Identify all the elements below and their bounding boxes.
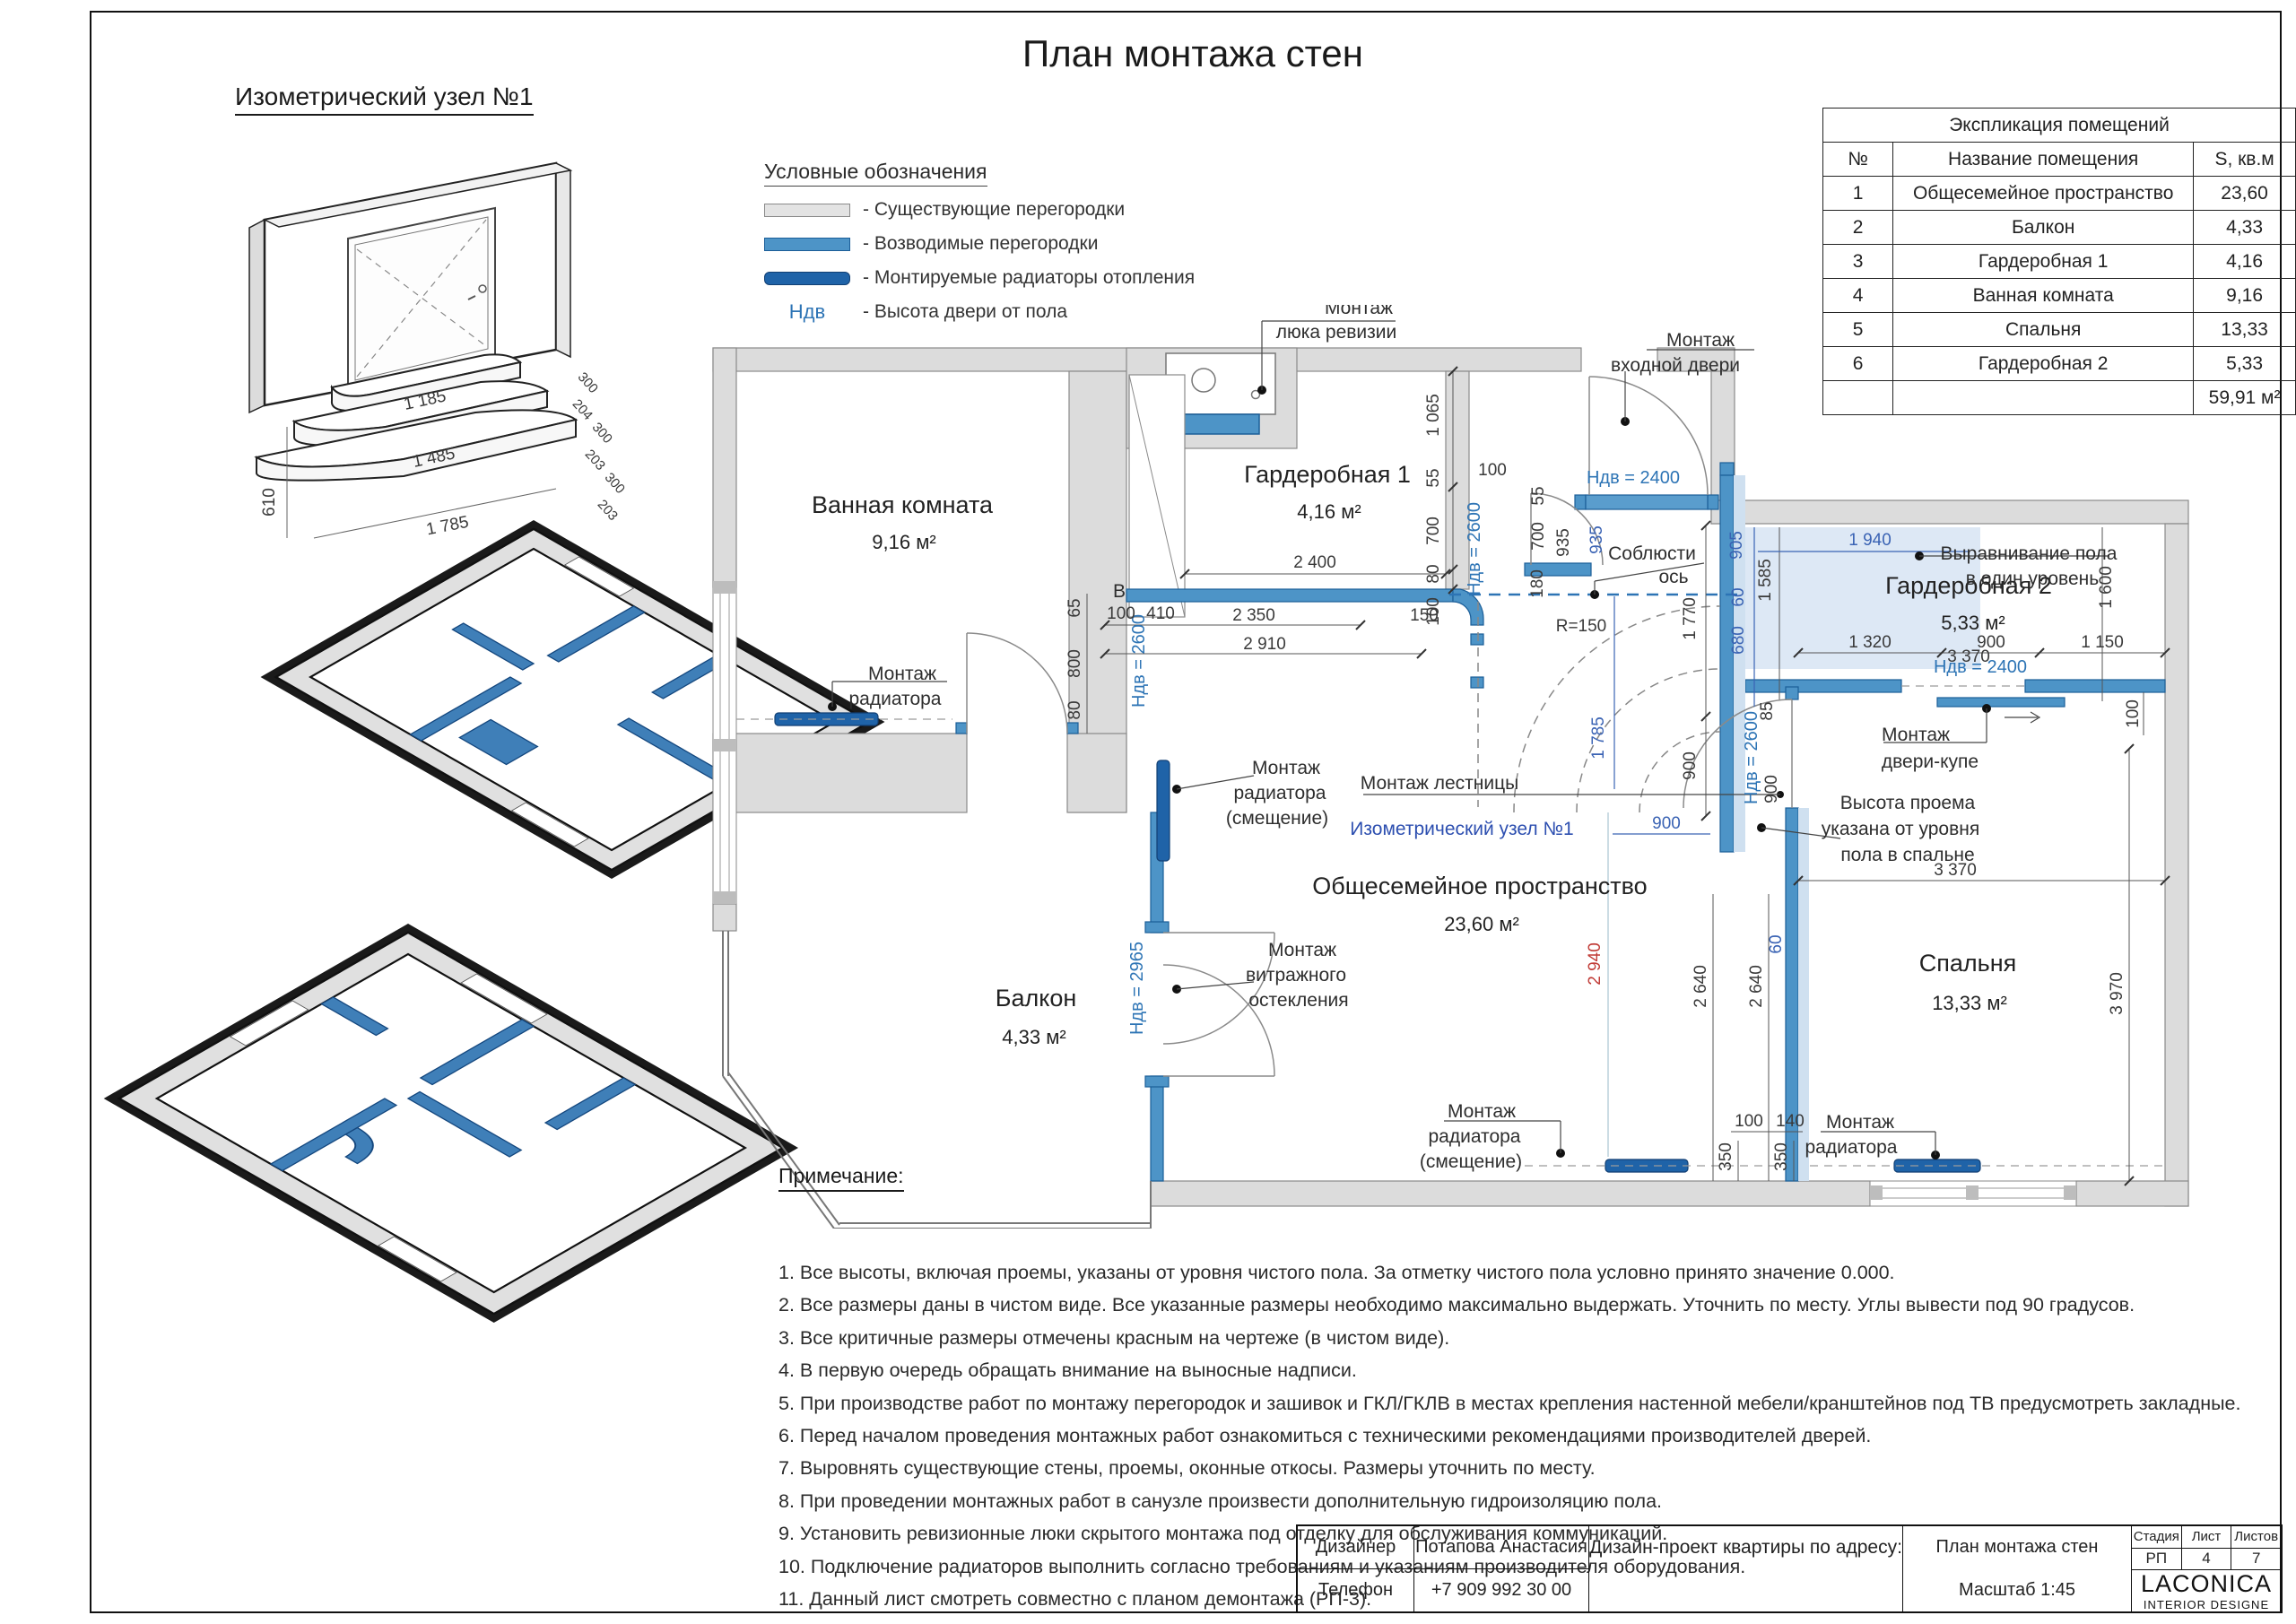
legend-item: - Существующие перегородки xyxy=(863,199,1125,221)
legend-item: - Возводимые перегородки xyxy=(863,233,1098,255)
total-area: 59,91 м² xyxy=(2194,381,2296,415)
dim: 2 640 xyxy=(1747,965,1766,1008)
callout: Монтаж xyxy=(1666,330,1735,351)
legend-item: - Монтируемые радиаторы отопления xyxy=(863,267,1195,289)
stage-label: Стадия xyxy=(2132,1526,2182,1548)
callout: Монтаж xyxy=(1448,1101,1516,1122)
dim: 2 910 xyxy=(1243,635,1286,654)
callout: ось xyxy=(1658,567,1688,587)
note-item: 1. Все высоты, включая проемы, указаны о… xyxy=(778,1256,2178,1289)
callout: Монтаж xyxy=(1325,305,1393,318)
room-name: Гардеробная 1 xyxy=(1244,461,1411,488)
explication-title: Экспликация помещений xyxy=(1823,109,2296,143)
dim: 2 400 xyxy=(1293,553,1336,572)
stage-value: РП xyxy=(2132,1549,2182,1570)
ndv-label: Ндв = 2965 xyxy=(1127,942,1147,1035)
callout-iso-ref: Изометрический узел №1 xyxy=(1350,819,1573,839)
dim: 680 xyxy=(1729,626,1748,655)
dim: 180 xyxy=(1528,569,1547,598)
dim-critical: 2 940 xyxy=(1586,942,1605,986)
dim: 55 xyxy=(1424,468,1443,487)
brand-sub: INTERIOR DESIGNE xyxy=(2144,1598,2269,1611)
dim: 100 xyxy=(1478,461,1507,480)
dim: 1 150 xyxy=(2081,633,2124,652)
callout: Высота проема xyxy=(1840,793,1976,813)
note-item: 4. В первую очередь обращать внимание на… xyxy=(778,1354,2178,1386)
ndv-label: Ндв = 2400 xyxy=(1587,468,1680,488)
dim: 700 xyxy=(1529,522,1548,551)
dim: 1 785 xyxy=(1589,716,1608,760)
room-name: Балкон xyxy=(996,985,1077,1012)
callout: Монтаж xyxy=(868,664,936,684)
new-wall-swatch-icon xyxy=(764,238,850,251)
col-num: № xyxy=(1823,143,1893,177)
drawing-sheet: План монтажа стен Изометрический узел №1… xyxy=(0,0,2296,1624)
sheet-label: Лист xyxy=(2182,1526,2232,1548)
dim: 1 065 xyxy=(1424,394,1443,437)
project-name: Дизайн-проект квартиры по адресу: xyxy=(1589,1526,1902,1611)
callout: Монтаж xyxy=(1826,1112,1894,1133)
brand-logo: LACONICA xyxy=(2141,1570,2272,1598)
col-name: Название помещения xyxy=(1893,143,2194,177)
iso-node-title: Изометрический узел №1 xyxy=(235,83,534,116)
room-area: 23,60 м² xyxy=(1444,913,1519,935)
callout: радиатора xyxy=(1429,1126,1521,1147)
sheet-name: План монтажа стен xyxy=(1903,1526,2131,1569)
callout: остекления xyxy=(1248,990,1348,1011)
note-item: 8. При проведении монтажных работ в сану… xyxy=(778,1485,2178,1517)
dim: 1 940 xyxy=(1848,531,1892,550)
dim: 1 585 xyxy=(1756,559,1775,602)
page-title: План монтажа стен xyxy=(942,32,1444,75)
dim: 65 xyxy=(1065,598,1084,617)
sheets-total: 7 xyxy=(2231,1549,2281,1570)
iso-dim: 300 xyxy=(602,470,628,497)
callout: витражного xyxy=(1246,965,1346,986)
dim: 2 640 xyxy=(1692,965,1710,1008)
dim: 100 xyxy=(2124,699,2143,728)
room-name: Спальня xyxy=(1919,950,2017,977)
callout: радиатора xyxy=(1234,783,1326,803)
dim: 60 xyxy=(1729,587,1748,606)
designer-name: Потапова Анастасия xyxy=(1414,1526,1588,1569)
callout: радиатора xyxy=(849,689,942,709)
dim: 85 xyxy=(1758,701,1777,720)
callout: люка ревизии xyxy=(1276,322,1397,343)
note-item: 7. Выровнять существующие стены, проемы,… xyxy=(778,1452,2178,1484)
callout: Монтаж xyxy=(1252,758,1320,778)
dim: R=150 xyxy=(1556,617,1607,636)
dim: 140 xyxy=(1776,1112,1805,1131)
callout: двери-купе xyxy=(1882,751,1979,772)
radiator-swatch-icon xyxy=(764,272,850,285)
callout: Выравнивание пола xyxy=(1941,543,2118,564)
legend: Условные обозначения - Существующие пере… xyxy=(764,160,1195,323)
table-row: 2Балкон4,33 xyxy=(1823,211,2296,245)
col-area: S, кв.м xyxy=(2194,143,2296,177)
table-row: 3Гардеробная 14,16 xyxy=(1823,245,2296,279)
dim: 800 xyxy=(1065,649,1084,678)
note-item: 5. При производстве работ по монтажу пер… xyxy=(778,1387,2178,1420)
sheet-number: 4 xyxy=(2182,1549,2232,1570)
room-area: 4,33 м² xyxy=(1002,1026,1065,1048)
iso-node-drawing: 1 185 1 485 1 785 610 300 204 300 203 30… xyxy=(179,117,682,565)
dim: 100 xyxy=(1735,1112,1763,1131)
phone-value: +7 909 992 30 00 xyxy=(1414,1569,1588,1611)
dim: 900 xyxy=(1762,775,1781,803)
callout: В xyxy=(1113,581,1126,602)
ndv-label: Ндв = 2600 xyxy=(1129,614,1149,708)
callout: Соблюсти xyxy=(1608,543,1696,564)
callout: Монтаж лестницы xyxy=(1361,773,1518,794)
dim: 80 xyxy=(1424,564,1443,583)
dim: 410 xyxy=(1146,604,1175,623)
iso-dim: 300 xyxy=(589,420,615,447)
dim: 55 xyxy=(1529,486,1548,505)
notes-title: Примечание: xyxy=(778,1164,904,1192)
dim: 700 xyxy=(1424,517,1443,545)
dim: 905 xyxy=(1727,531,1746,560)
title-block: Дизайнер Телефон Потапова Анастасия +7 9… xyxy=(1296,1524,2283,1613)
sheets-label: Листов xyxy=(2231,1526,2281,1548)
callout: Монтаж xyxy=(1268,940,1336,960)
table-row: 1Общесемейное пространство23,60 xyxy=(1823,177,2296,211)
scale: Масштаб 1:45 xyxy=(1903,1569,2131,1612)
room-name: Ванная комната xyxy=(812,491,994,518)
callout: (смещение) xyxy=(1226,808,1328,829)
phone-label: Телефон xyxy=(1298,1569,1413,1611)
callout: Монтаж xyxy=(1882,725,1950,745)
room-area: 13,33 м² xyxy=(1932,992,2007,1014)
room-name: Общесемейное пространство xyxy=(1312,873,1647,899)
iso-dim: 203 xyxy=(582,447,608,473)
callout: указана от уровня xyxy=(1822,819,1979,839)
room-area: 5,33 м² xyxy=(1941,612,2005,634)
dim: 2 350 xyxy=(1232,606,1275,625)
note-item: 6. Перед началом проведения монтажных ра… xyxy=(778,1420,2178,1452)
dim: 80 xyxy=(1065,700,1084,719)
note-item: 3. Все критичные размеры отмечены красны… xyxy=(778,1322,2178,1354)
callout: радиатора xyxy=(1805,1137,1898,1158)
existing-wall-swatch-icon xyxy=(764,204,850,217)
dim: 935 xyxy=(1587,525,1606,554)
legend-title: Условные обозначения xyxy=(764,160,987,187)
ndv-label: Ндв = 2600 xyxy=(1465,502,1484,595)
room-area: 4,16 м² xyxy=(1297,500,1361,523)
designer-label: Дизайнер xyxy=(1298,1526,1413,1569)
dim: 3 970 xyxy=(2108,972,2126,1015)
dim: 3 370 xyxy=(1934,861,1977,880)
dim: 900 xyxy=(1977,633,2005,652)
dim: 1 770 xyxy=(1681,597,1700,640)
ndv-label: Ндв = 2600 xyxy=(1742,711,1761,804)
callout: в один уровень xyxy=(1966,569,2099,589)
dim: 100 xyxy=(1107,604,1135,623)
iso-dim: 300 xyxy=(575,369,601,396)
dim: 900 xyxy=(1681,751,1700,780)
floor-plan: Ванная комната 9,16 м² Гардеробная 1 4,1… xyxy=(700,305,2206,1229)
room-area: 9,16 м² xyxy=(872,531,935,553)
dim: 1 320 xyxy=(1848,633,1892,652)
dim: 150 xyxy=(1410,606,1439,625)
dim: 1 600 xyxy=(2097,566,2116,609)
dim: 60 xyxy=(1767,934,1786,953)
callout: входной двери xyxy=(1611,355,1740,376)
dim: 935 xyxy=(1554,528,1573,557)
dim: 900 xyxy=(1652,814,1681,833)
note-item: 2. Все размеры даны в чистом виде. Все у… xyxy=(778,1289,2178,1321)
